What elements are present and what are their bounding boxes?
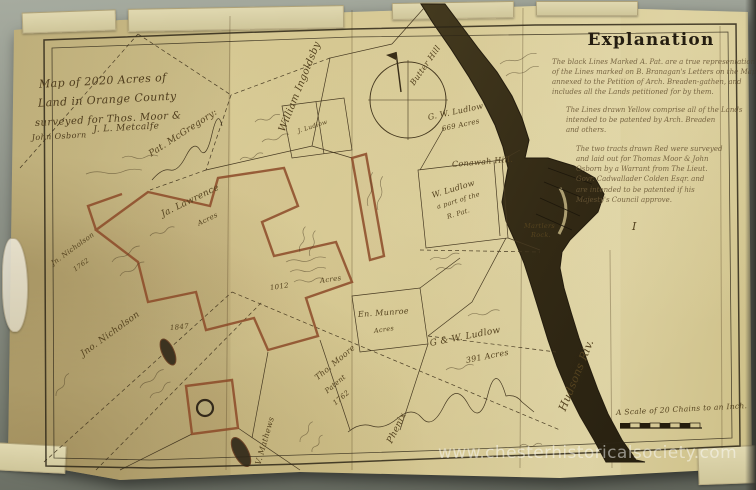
explanation-paragraphs: The black Lines Marked A. Pat. are a tru…	[552, 57, 750, 205]
watermark-text: www.chesterhistoricalsociety.com	[438, 443, 737, 463]
explanation-block: Explanation The black Lines Marked A. Pa…	[552, 30, 750, 205]
compass-rose	[368, 52, 448, 140]
scale-bar	[620, 423, 702, 428]
map-label: Rock.	[531, 231, 551, 239]
map-label: Martlers	[524, 222, 555, 230]
photo-edge-shadow	[745, 0, 756, 490]
explanation-paragraph: The black Lines Marked A. Pat. are a tru…	[552, 57, 750, 98]
photo-of-antique-map: Map of 2020 Acres ofLand in Orange Count…	[0, 0, 756, 490]
map-label: 1847	[170, 322, 190, 332]
red-tract-outlines	[88, 154, 384, 434]
explanation-heading: Explanation	[552, 30, 750, 50]
pond	[227, 435, 254, 470]
pond	[197, 400, 213, 416]
explanation-paragraph: The two tracts drawn Red were surveyedan…	[576, 144, 750, 205]
map-label: I	[632, 220, 637, 233]
pond	[157, 337, 179, 367]
explanation-paragraph: The Lines drawn Yellow comprise all of t…	[566, 105, 750, 135]
compass-north-arrow-icon	[386, 52, 401, 92]
title-line: Land in Orange County	[38, 89, 181, 109]
title-block: Map of 2020 Acres ofLand in Orange Count…	[39, 70, 182, 133]
